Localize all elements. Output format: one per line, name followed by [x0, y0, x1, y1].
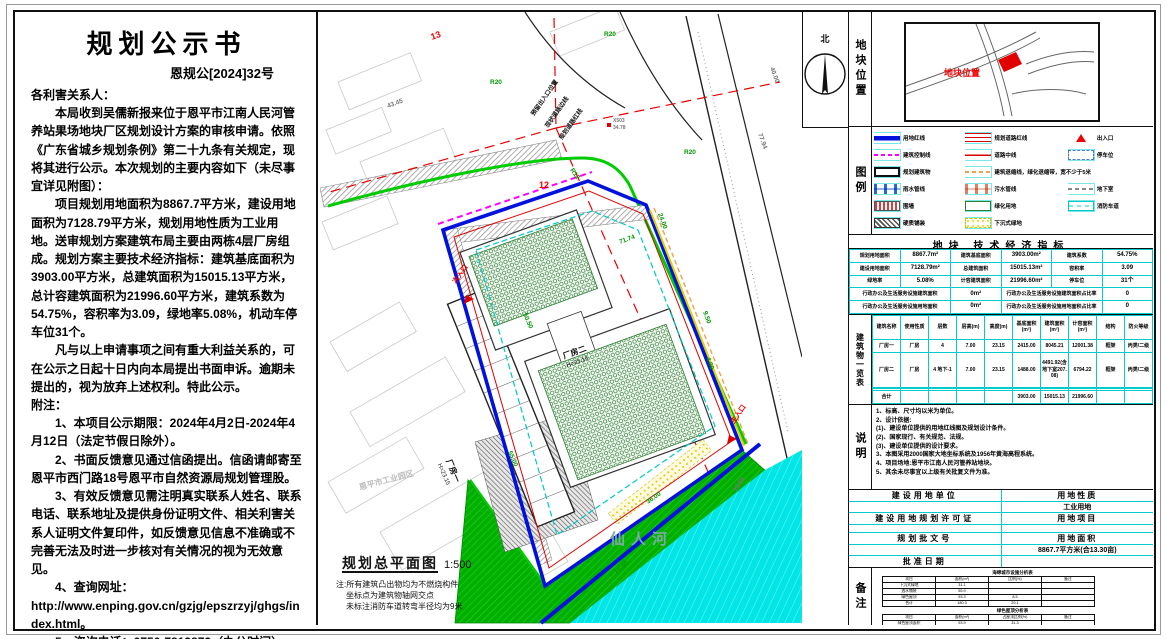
note-line: 2、设计依据: — [876, 417, 1149, 426]
field-value: 8867.7平方米(合13.30亩) — [1002, 545, 1154, 555]
site-marker-polygon — [998, 52, 1022, 72]
buildings-header-cell: 建筑面积(m²) — [1041, 316, 1069, 340]
buildings-data-cell — [1097, 391, 1125, 404]
legend-item-label: 建筑控制线 — [903, 151, 931, 159]
buildings-data-cell: 合计 — [873, 391, 901, 404]
buildings-data-row: 合计3903.0015015.1321996.60 — [873, 391, 1153, 404]
indicator-cell: 3903.00m² — [1001, 250, 1052, 263]
field-row: 建设用地单位用地性质 — [849, 490, 1153, 502]
legend-item: 建筑控制线 — [874, 148, 965, 162]
legend-item: 绿化用地 — [965, 199, 1067, 213]
field-label: 建设用地单位 — [849, 490, 1002, 501]
indicator-cell: 15015.13m² — [1001, 262, 1052, 275]
legend-item-label: 道路中线 — [994, 151, 1016, 159]
indicators-title-row: 地块 技术经济指标 — [849, 235, 1153, 249]
site-plan-drawing: 43.451312R20R20R20R1277.9440.0024.009.50… — [320, 12, 802, 625]
buildings-data-cell: 6794.22 — [1069, 352, 1097, 387]
buildings-data-row: 厂房二厂房4 地下-17.0023.151488.004491.92(含地下室2… — [873, 352, 1153, 387]
legend-item-label: 停车位 — [1097, 151, 1114, 159]
title-block-panel: 地块位置 地块位 — [848, 12, 1152, 625]
indicator-cell: 总建筑面积 — [951, 262, 1002, 275]
legend-item: 建筑退缩线，绿化退缩带，宽不少于5米 — [965, 165, 1151, 179]
indicator-cell: 0m² — [951, 301, 1002, 314]
buildings-data-cell: 15015.13 — [1041, 391, 1069, 404]
legend-row: 图例 用地红线规划道路红线出入口建筑控制线道路中线停车位规划建筑物建筑退缩线，绿… — [849, 127, 1153, 235]
note-line: (2)、国家现行、有关规范、法规。 — [876, 434, 1149, 443]
plan-title-block: 规划总平面图 1:500 注:所有建筑凸出物均为不燃烧构件 坐标点为建筑物轴网交… — [336, 555, 472, 611]
buildings-data-cell: 厂房二 — [873, 352, 901, 387]
plan-annotation-text: 9.50 — [701, 310, 712, 325]
notes-list: 1、标高、尺寸均以米为单位。2、设计依据:(1)、建设单位提供的用地红线图及规划… — [872, 405, 1153, 489]
field-row: 工业用地 — [849, 502, 1153, 513]
field-value: 用地面积 — [1002, 533, 1154, 544]
plan-annotation-text: R20 — [604, 31, 616, 38]
legend-item: 规划道路红线 — [965, 131, 1067, 145]
remark-data-cell: 29.1 — [988, 600, 1041, 606]
remark-data-cell: 合计 — [883, 600, 936, 606]
indicator-cell: 绿地率 — [850, 275, 901, 288]
buildings-data-cell: 厂房 — [901, 352, 929, 387]
site-location-label: 地块位置 — [849, 12, 872, 126]
remark-data-cell: 绿色屋顶面积 — [883, 620, 936, 625]
plan-annotation-text: R20 — [684, 149, 696, 156]
band-red-hatch-swatch — [874, 201, 900, 211]
plan-annotation-text: 77.94 — [756, 132, 768, 150]
buildings-data-cell: 丙类/二级 — [1125, 352, 1153, 387]
plan-note-1: 注:所有建筑凸出物均为不燃烧构件 — [336, 579, 458, 589]
field-row: 建设用地规划许可证用地项目 — [849, 513, 1153, 525]
indicator-cell: 行政办公及生活服务设施建筑面积 — [850, 288, 951, 301]
buildings-header-cell: 计容面积(m²) — [1069, 316, 1097, 340]
indicator-row: 行政办公及生活服务设施用地面积0m²行政办公及生活服务设施用地面积占比率0 — [850, 301, 1153, 314]
legend-item-label: 污水管线 — [994, 185, 1016, 193]
plan-annotation-text: 34.78 — [613, 125, 626, 131]
indicator-row: 规划用地面积8867.7m²建筑基底面积3903.00m²建筑系数54.75% — [850, 250, 1153, 263]
legend-item: 用地红线 — [874, 131, 965, 145]
legend-item: 硬质铺装 — [874, 216, 965, 230]
dots-yellow-swatch — [965, 218, 991, 228]
legend-item: 道路中线 — [965, 148, 1067, 162]
site-plan-svg: 43.451312R20R20R20R1277.9440.0024.009.50… — [320, 12, 802, 625]
legend-item-label: 出入口 — [1097, 134, 1114, 142]
remark-row: 备注 海绵城市设施分析表项目面积(m²)比例(%)备注下沉式绿地31.1透水铺装… — [849, 568, 1153, 625]
note-line: 1、标高、尺寸均以米为单位。 — [876, 408, 1149, 417]
buildings-header-cell: 结构 — [1097, 316, 1125, 340]
buildings-header-cell: 建筑名称 — [873, 316, 901, 340]
legend-item-label: 消防车道 — [1097, 202, 1119, 210]
notes-row: 说明 1、标高、尺寸均以米为单位。2、设计依据:(1)、建设单位提供的用地红线图… — [849, 405, 1153, 490]
buildings-data-cell: 3903.00 — [1013, 391, 1041, 404]
legend-item-label: 围墙 — [903, 202, 914, 210]
buildings-header-cell: 层高(m) — [957, 316, 985, 340]
indicator-cell: 21996.60m² — [1001, 275, 1052, 288]
legend-item: 出入口 — [1068, 131, 1151, 145]
remark-label: 备注 — [849, 568, 872, 625]
legend-item: 规划建筑物 — [874, 165, 965, 179]
buildings-data-cell — [1125, 391, 1153, 404]
line-blue-thick-swatch — [874, 133, 900, 143]
buildings-data-cell: 厂房一 — [873, 339, 901, 352]
plan-title: 规划总平面图 — [342, 555, 438, 571]
hatch-dark-swatch — [874, 218, 900, 228]
buildings-header-row: 建筑名称使用性质层数层高(m)高度(m)基底面积(m²)建筑面积(m²)计容面积… — [873, 316, 1153, 340]
indicator-cell: 行政办公及生活服务设施用地面积 — [850, 301, 951, 314]
legend-item-label: 地下室 — [1097, 185, 1114, 193]
remark-data-cell: 180.3 — [935, 600, 988, 606]
notes-label: 说明 — [849, 405, 872, 489]
box-dash-swatch — [1068, 150, 1094, 160]
buildings-data-cell: 23.15 — [985, 352, 1013, 387]
field-row: 8867.7平方米(合13.30亩) — [849, 545, 1153, 556]
buildings-data-cell: 12001.38 — [1069, 339, 1097, 352]
legend-item-label: 雨水管线 — [903, 185, 925, 193]
plan-annotation-text: 40.00 — [768, 66, 780, 84]
indicators-table: 规划用地面积8867.7m²建筑基底面积3903.00m²建筑系数54.75%建… — [849, 249, 1153, 314]
legend-item-label: 绿化用地 — [994, 202, 1016, 210]
field-label: 建设用地规划许可证 — [849, 513, 1002, 524]
remark-data-row: 绿色屋顶面积93.931.3 — [883, 620, 1095, 625]
buildings-data-cell — [985, 391, 1013, 404]
doc-note-2: 2、书面反馈意见通过信函提出。信函请邮寄至恩平市西门路18号恩平市自然资源局规划… — [31, 451, 302, 487]
indicator-cell: 7128.79m² — [900, 262, 951, 275]
title-block-fields: 建设用地单位用地性质工业用地建设用地规划许可证用地项目规划批文号用地面积8867… — [849, 490, 1153, 567]
doc-title: 规划公示书 — [31, 24, 302, 61]
location-mini-map: 地块位置 — [904, 22, 1100, 122]
note-line: (1)、建设单位提供的用地红线图及规划设计条件。 — [876, 425, 1149, 434]
line-orange-dash-swatch — [965, 167, 991, 177]
legend-item: 雨水管线 — [874, 182, 965, 196]
buildings-data-cell: 7.00 — [957, 339, 985, 352]
site-location-marker-label: 地块位置 — [944, 66, 980, 79]
legend-label: 图例 — [849, 127, 872, 234]
river — [570, 450, 802, 623]
line-magenta-dash-swatch — [874, 150, 900, 160]
indicator-cell: 31个 — [1102, 275, 1153, 288]
doc-note-1: 1、本项目公示期限：2024年4月2日-2024年4月12日（法定节假日除外）。 — [31, 414, 302, 450]
plan-annotation-text: X503 — [613, 118, 625, 124]
doc-number: 恩规公[2024]32号 — [31, 63, 302, 82]
indicator-cell: 建筑基底面积 — [951, 250, 1002, 263]
indicator-cell: 规划用地面积 — [850, 250, 901, 263]
field-row: 规划批文号用地面积 — [849, 533, 1153, 545]
buildings-data-cell — [901, 391, 929, 404]
buildings-table-label: 建筑物一览表 — [849, 315, 872, 404]
indicator-cell: 建筑系数 — [1052, 250, 1103, 263]
building1-label: 厂房一 H=23.15 — [436, 458, 463, 488]
field-value: 用地性质 — [1002, 490, 1154, 501]
plan-annotation-text: R20 — [490, 79, 502, 86]
legend-item: 下沉式绿地 — [965, 216, 1067, 230]
legend-item: 污水管线 — [965, 182, 1067, 196]
legend-item: 围墙 — [874, 199, 965, 213]
river-label: 仙人河 — [610, 530, 673, 548]
buildings-data-cell: 21996.60 — [1069, 391, 1097, 404]
plan-annotation-text: 13 — [429, 29, 442, 42]
note-line: (3)、建设单位提供的设计要求。 — [876, 443, 1149, 452]
field-row — [849, 525, 1153, 533]
doc-note-5: 5、咨询电话：0750-7813872（办公时间） — [31, 633, 302, 639]
line-blue-sq-swatch — [874, 184, 900, 194]
legend-item-label: 硬质铺装 — [903, 219, 925, 227]
remark-table: 项目面积(m²)比例(%)备注下沉式绿地31.1透水铺装55.9绿色屋顶93.3… — [882, 576, 1095, 607]
fields-rows: 建设用地单位用地性质工业用地建设用地规划许可证用地项目规划批文号用地面积8867… — [849, 490, 1153, 568]
notice-text-panel: 规划公示书 恩规公[2024]32号 各利害关系人： 本局收到吴儒新报来位于恩平… — [15, 12, 318, 625]
buildings-header-cell: 高度(m) — [985, 316, 1013, 340]
line-salmon-sq-swatch — [965, 184, 991, 194]
buildings-data-cell — [929, 391, 957, 404]
indicator-cell: 行政办公及生活服务设施用地面积占比率 — [1001, 301, 1102, 314]
buildings-data-cell — [957, 391, 985, 404]
band-cyan-dash-swatch — [1068, 201, 1094, 211]
indicator-cell: 行政办公及生活服务设施建筑面积占比率 — [1001, 288, 1102, 301]
plan-note-3: 未标注消防车道转弯半径均为9米 — [346, 601, 462, 611]
indicator-cell: 停车位 — [1052, 275, 1103, 288]
plan-annotation-text: 恩平市工业园区 — [358, 468, 415, 492]
buildings-table: 建筑名称使用性质层数层高(m)高度(m)基底面积(m²)建筑面积(m²)计容面积… — [872, 315, 1153, 404]
buildings-header-cell: 层数 — [929, 316, 957, 340]
remark-tables: 海绵城市设施分析表项目面积(m²)比例(%)备注下沉式绿地31.1透水铺装55.… — [872, 568, 1153, 625]
indicator-cell: 0 — [1102, 288, 1153, 301]
field-label — [849, 502, 1002, 512]
buildings-table-row: 建筑物一览表 建筑名称使用性质层数层高(m)高度(m)基底面积(m²)建筑面积(… — [849, 315, 1153, 405]
buildings-data-cell: 23.15 — [985, 339, 1013, 352]
field-value: 用地项目 — [1002, 513, 1154, 524]
legend-item: 停车位 — [1068, 148, 1151, 162]
plan-note-2: 坐标点为建筑物轴网交点 — [346, 590, 434, 600]
rect-black-swatch — [874, 167, 900, 177]
line-red-double-swatch — [965, 133, 991, 143]
legend-item: 消防车道 — [1068, 199, 1151, 213]
field-row: 批准日期 — [849, 556, 1153, 567]
legend-grid: 用地红线规划道路红线出入口建筑控制线道路中线停车位规划建筑物建筑退缩线，绿化退缩… — [872, 127, 1153, 234]
plan-annotation-text: 12 — [539, 180, 549, 190]
buildings-header-cell: 基底面积(m²) — [1013, 316, 1041, 340]
doc-appendix-label: 附注： — [31, 396, 302, 414]
legend-item-label: 规划建筑物 — [903, 168, 931, 176]
field-label — [849, 545, 1002, 555]
doc-url: http://www.enping.gov.cn/gzjg/epszrzyj/g… — [31, 597, 302, 633]
indicator-cell: 建设用地面积 — [850, 262, 901, 275]
indicator-cell: 8867.7m² — [900, 250, 951, 263]
doc-note-4: 4、查询网址： — [31, 578, 302, 596]
tri-red-swatch — [1068, 133, 1094, 143]
doc-paragraph-2: 项目规划用地面积为8867.7平方米，建设用地面积为7128.79平方米，规划用… — [31, 195, 302, 341]
legend-item-label: 建筑退缩线，绿化退缩带，宽不少于5米 — [994, 168, 1091, 176]
buildings-data-cell: 2415.00 — [1013, 339, 1041, 352]
buildings-data-cell: 8045.21 — [1041, 339, 1069, 352]
plan-scale: 1:500 — [444, 559, 472, 571]
doc-note-3: 3、有效反馈意见需注明真实联系人姓名、联系电话、联系地址及提供身份证明文件、相关… — [31, 487, 302, 578]
remark-table-block: 绿色屋顶分析表项目面积(m²)占屋顶比例(%)备注绿色屋顶面积93.931.3屋… — [876, 608, 1149, 625]
buildings-header-cell: 防火等级 — [1125, 316, 1153, 340]
doc-salutation: 各利害关系人： — [31, 86, 302, 104]
field-label: 批准日期 — [849, 556, 1002, 567]
north-arrow: 北 — [802, 12, 850, 128]
buildings-header-cell: 使用性质 — [901, 316, 929, 340]
buildings-data-cell: 丙类/二级 — [1125, 339, 1153, 352]
remark-data-cell — [1041, 600, 1094, 606]
field-label — [849, 525, 1002, 532]
remark-data-row: 合计180.329.1 — [883, 600, 1095, 606]
note-line: 3、本图采用2000国家大地坐标系统及1956年黄海高程系统。 — [876, 451, 1149, 460]
remark-data-cell — [1041, 620, 1094, 625]
benchmark-point — [607, 123, 611, 127]
line-red-swatch — [965, 150, 991, 160]
note-line: 4、项目场地:恩平市江南人民河管养站地块。 — [876, 460, 1149, 469]
legend-item-label: 用地红线 — [903, 134, 925, 142]
buildings-data-row: 厂房一厂房47.0023.152415.008045.2112001.38框架丙… — [873, 339, 1153, 352]
field-value: 工业用地 — [1002, 502, 1154, 512]
field-label: 规划批文号 — [849, 533, 1002, 544]
legend-item: 地下室 — [1068, 182, 1151, 196]
indicator-row: 绿地率5.08%计容建筑面积21996.60m²停车位31个 — [850, 275, 1153, 288]
note-line: 5、其余未尽事宜以上级有关批复文件为准。 — [876, 469, 1149, 478]
site-location-row: 地块位置 地块位 — [849, 12, 1153, 127]
indicator-cell: 5.08% — [900, 275, 951, 288]
doc-paragraph-1: 本局收到吴儒新报来位于恩平市江南人民河管养站果场地块厂区规划设计方案的审核申请。… — [31, 104, 302, 195]
remark-data-cell: 93.9 — [935, 620, 988, 625]
hex-green-swatch — [965, 201, 991, 211]
legend-item-label: 下沉式绿地 — [994, 219, 1022, 227]
indicator-cell: 计容建筑面积 — [951, 275, 1002, 288]
buildings-data-cell: 4 地下-1 — [929, 352, 957, 387]
indicator-row: 行政办公及生活服务设施建筑面积0m²行政办公及生活服务设施建筑面积占比率0 — [850, 288, 1153, 301]
buildings-data-cell: 7.00 — [957, 352, 985, 387]
plan-annotation-text: 71.74 — [618, 234, 636, 246]
buildings-data-cell: 框架 — [1097, 352, 1125, 387]
remark-data-cell: 31.3 — [988, 620, 1041, 625]
planning-notice-sheet: 规划公示书 恩规公[2024]32号 各利害关系人： 本局收到吴儒新报来位于恩平… — [0, 0, 1167, 639]
indicators-table-row: 规划用地面积8867.7m²建筑基底面积3903.00m²建筑系数54.75%建… — [849, 249, 1153, 315]
remark-table: 项目面积(m²)占屋顶比例(%)备注绿色屋顶面积93.931.3屋顶总面积300… — [882, 614, 1095, 625]
indicator-row: 建设用地面积7128.79m²总建筑面积15015.13m²容积率3.09 — [850, 262, 1153, 275]
indicator-cell: 容积率 — [1052, 262, 1103, 275]
indicator-cell: 0 — [1102, 301, 1153, 314]
buildings-data-cell: 4 — [929, 339, 957, 352]
indicator-cell: 54.75% — [1102, 250, 1153, 263]
legend-item-label: 规划道路红线 — [994, 134, 1027, 142]
buildings-data-cell: 框架 — [1097, 339, 1125, 352]
buildings-data-cell: 4491.92(含地下室207.08) — [1041, 352, 1069, 387]
indicators-title: 地块 技术经济指标 — [849, 235, 1153, 248]
buildings-data-cell: 1488.00 — [1013, 352, 1041, 387]
indicator-cell: 3.09 — [1102, 262, 1153, 275]
indicator-cell: 0m² — [951, 288, 1002, 301]
remark-table-block: 海绵城市设施分析表项目面积(m²)比例(%)备注下沉式绿地31.1透水铺装55.… — [876, 570, 1149, 607]
line-gray-dash-swatch — [1068, 184, 1094, 194]
north-label: 北 — [820, 33, 829, 44]
doc-paragraph-3: 凡与以上申请事项之间有重大利益关系的，可在公示之日起十日内向本局提出书面申诉。逾… — [31, 341, 302, 396]
plan-annotation-text: 43.45 — [386, 98, 404, 110]
buildings-data-cell: 厂房 — [901, 339, 929, 352]
